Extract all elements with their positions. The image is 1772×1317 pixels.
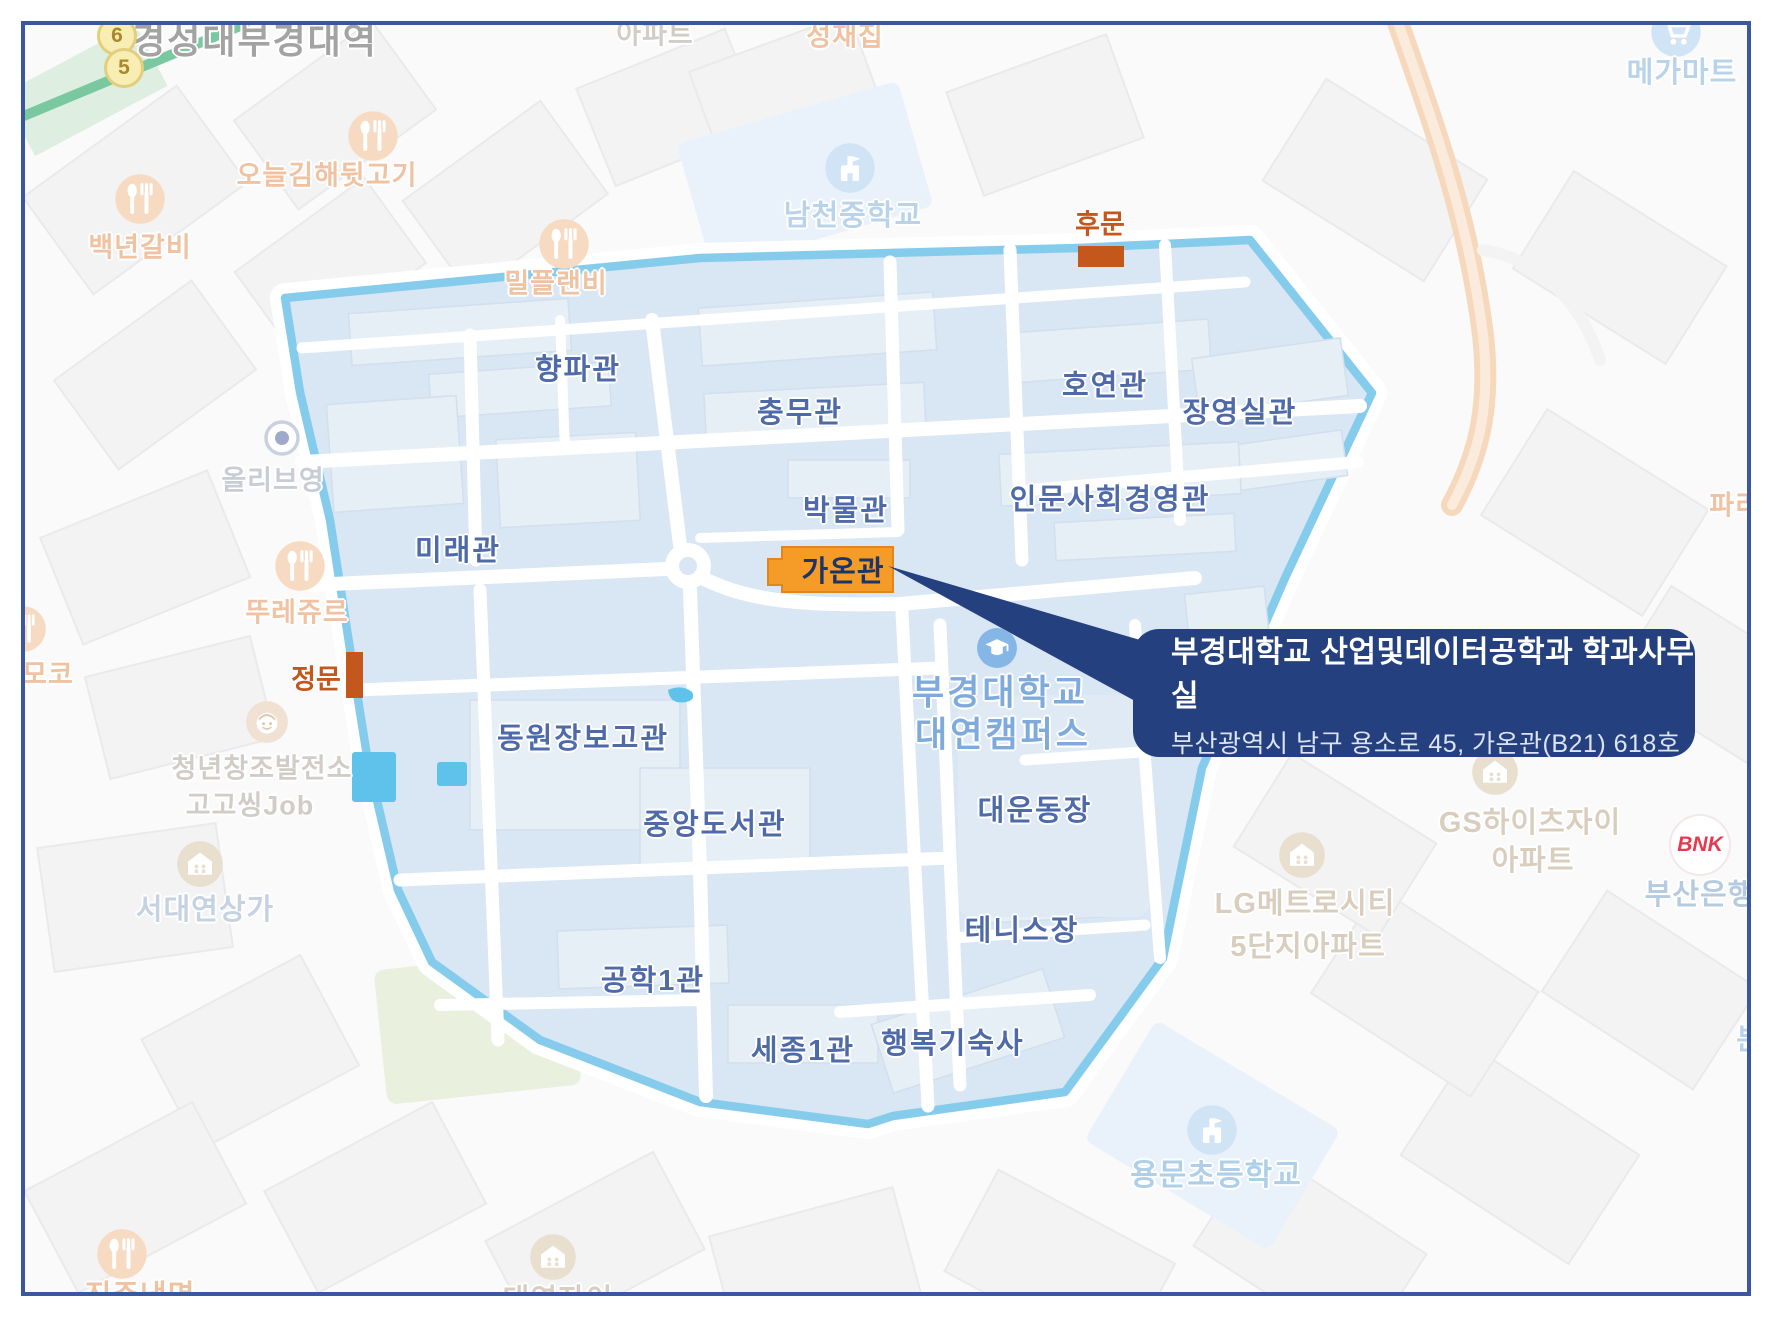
seodaeyeon-label: 서대연상가 (136, 886, 274, 928)
lg-apartment-label-line2: 5단지아파트 (1230, 923, 1386, 965)
restaurant-label-jinju: 진주냉면 (85, 1272, 196, 1296)
restaurant-icon (275, 541, 324, 590)
map-frame: 경성대부경대역 6 5 아파트 성재집 메가마트 오늘김해뒷고기 백년갈비 밀플… (21, 21, 1751, 1296)
subway-station-label: 경성대부경대역 (132, 21, 378, 64)
map-world: 경성대부경대역 6 5 아파트 성재집 메가마트 오늘김해뒷고기 백년갈비 밀플… (21, 21, 1751, 1296)
restaurant-label-moko: 모코 (22, 653, 74, 692)
bun-label: 분 (1736, 1016, 1751, 1058)
building-label-gonghak1: 공학1관 (601, 957, 705, 999)
back-gate-marker (1078, 246, 1124, 267)
youth-center-face-icon (246, 701, 288, 743)
back-gate-label: 후문 (1075, 203, 1125, 242)
building-label-museum: 박물관 (803, 487, 889, 529)
building-label-jungang-library: 중앙도서관 (643, 801, 786, 843)
school-label-yongmun: 용문초등학교 (1130, 1150, 1302, 1194)
restaurant-label-tous: 뚜레쥬르 (245, 591, 348, 630)
busan-bank-label: 부산은행 (1645, 871, 1751, 913)
building-label-inmunsahoe: 인문사회경영관 (1010, 476, 1211, 518)
apartment-icon (1279, 832, 1325, 878)
restaurant-label-seongjae: 성재집 (806, 21, 884, 54)
gs-apartment-label-line2: 아파트 (1491, 837, 1574, 879)
building-label-jangyeongsil: 장영실관 (1183, 389, 1298, 431)
lg-apartment-label-line1: LG메트로시티 (1215, 880, 1396, 922)
school-label-namcheon: 남천중학교 (784, 192, 922, 234)
restaurant-label-oneul: 오늘김해뒷고기 (237, 154, 418, 193)
school-icon (825, 143, 874, 192)
callout-address: 부산광역시 남구 용소로 45, 가온관(B21) 618호 (1171, 724, 1695, 760)
youth-center-label-line2: 고고씽Job (186, 784, 315, 823)
youth-center-label-line1: 청년창조발전소 (172, 747, 353, 786)
subway-exit-badge-5: 5 (104, 48, 144, 88)
daeyeon-apartment-label: 대연자이 (503, 1276, 614, 1296)
building-label-daeundongjang: 대운동장 (978, 787, 1093, 829)
school-icon (1187, 1105, 1236, 1154)
restaurant-label-baeknyeon: 백년갈비 (88, 226, 191, 265)
campus-map-canvas: 경성대부경대역 6 5 아파트 성재집 메가마트 오늘김해뒷고기 백년갈비 밀플… (0, 0, 1772, 1317)
shop-building-icon (177, 841, 223, 887)
apartment-label-top: 아파트 (616, 21, 694, 52)
olive-young-label: 올리브영 (221, 459, 324, 498)
building-label-mirae: 미래관 (415, 527, 501, 569)
restaurant-label-milplan: 밀플랜비 (504, 262, 607, 301)
apartment-icon (530, 1234, 576, 1280)
building-label-dongwonjangbogo: 동원장보고관 (497, 715, 669, 757)
building-label-hyangpa: 향파관 (535, 346, 621, 388)
main-gate-marker (346, 652, 363, 698)
building-label-tennis: 테니스장 (965, 907, 1080, 949)
campus-name-line2: 대연캠퍼스 (915, 707, 1091, 758)
restaurant-icon (115, 174, 164, 223)
building-label-haengbok-dorm: 행복기숙사 (881, 1020, 1024, 1062)
building-label-chungmu: 충무관 (757, 389, 843, 431)
paris-label: 파리바 (1709, 484, 1751, 523)
megamart-label: 메가마트 (1627, 49, 1738, 91)
bnk-bank-logo: BNK (1671, 816, 1729, 874)
department-office-callout: 부경대학교 산업및데이터공학과 학과사무실 부산광역시 남구 용소로 45, 가… (1133, 629, 1695, 757)
university-grad-cap-icon (977, 628, 1017, 668)
olive-young-icon (266, 422, 298, 454)
building-label-sejong1: 세종1관 (751, 1027, 855, 1069)
building-label-hoyeon: 호연관 (1062, 362, 1148, 404)
gs-apartment-label-line1: GS하이츠자이 (1439, 799, 1621, 841)
callout-title: 부경대학교 산업및데이터공학과 학과사무실 (1171, 627, 1695, 715)
building-label-gaon: 가온관 (801, 548, 884, 590)
roundabout-island (679, 557, 697, 575)
main-gate-label: 정문 (291, 658, 341, 697)
